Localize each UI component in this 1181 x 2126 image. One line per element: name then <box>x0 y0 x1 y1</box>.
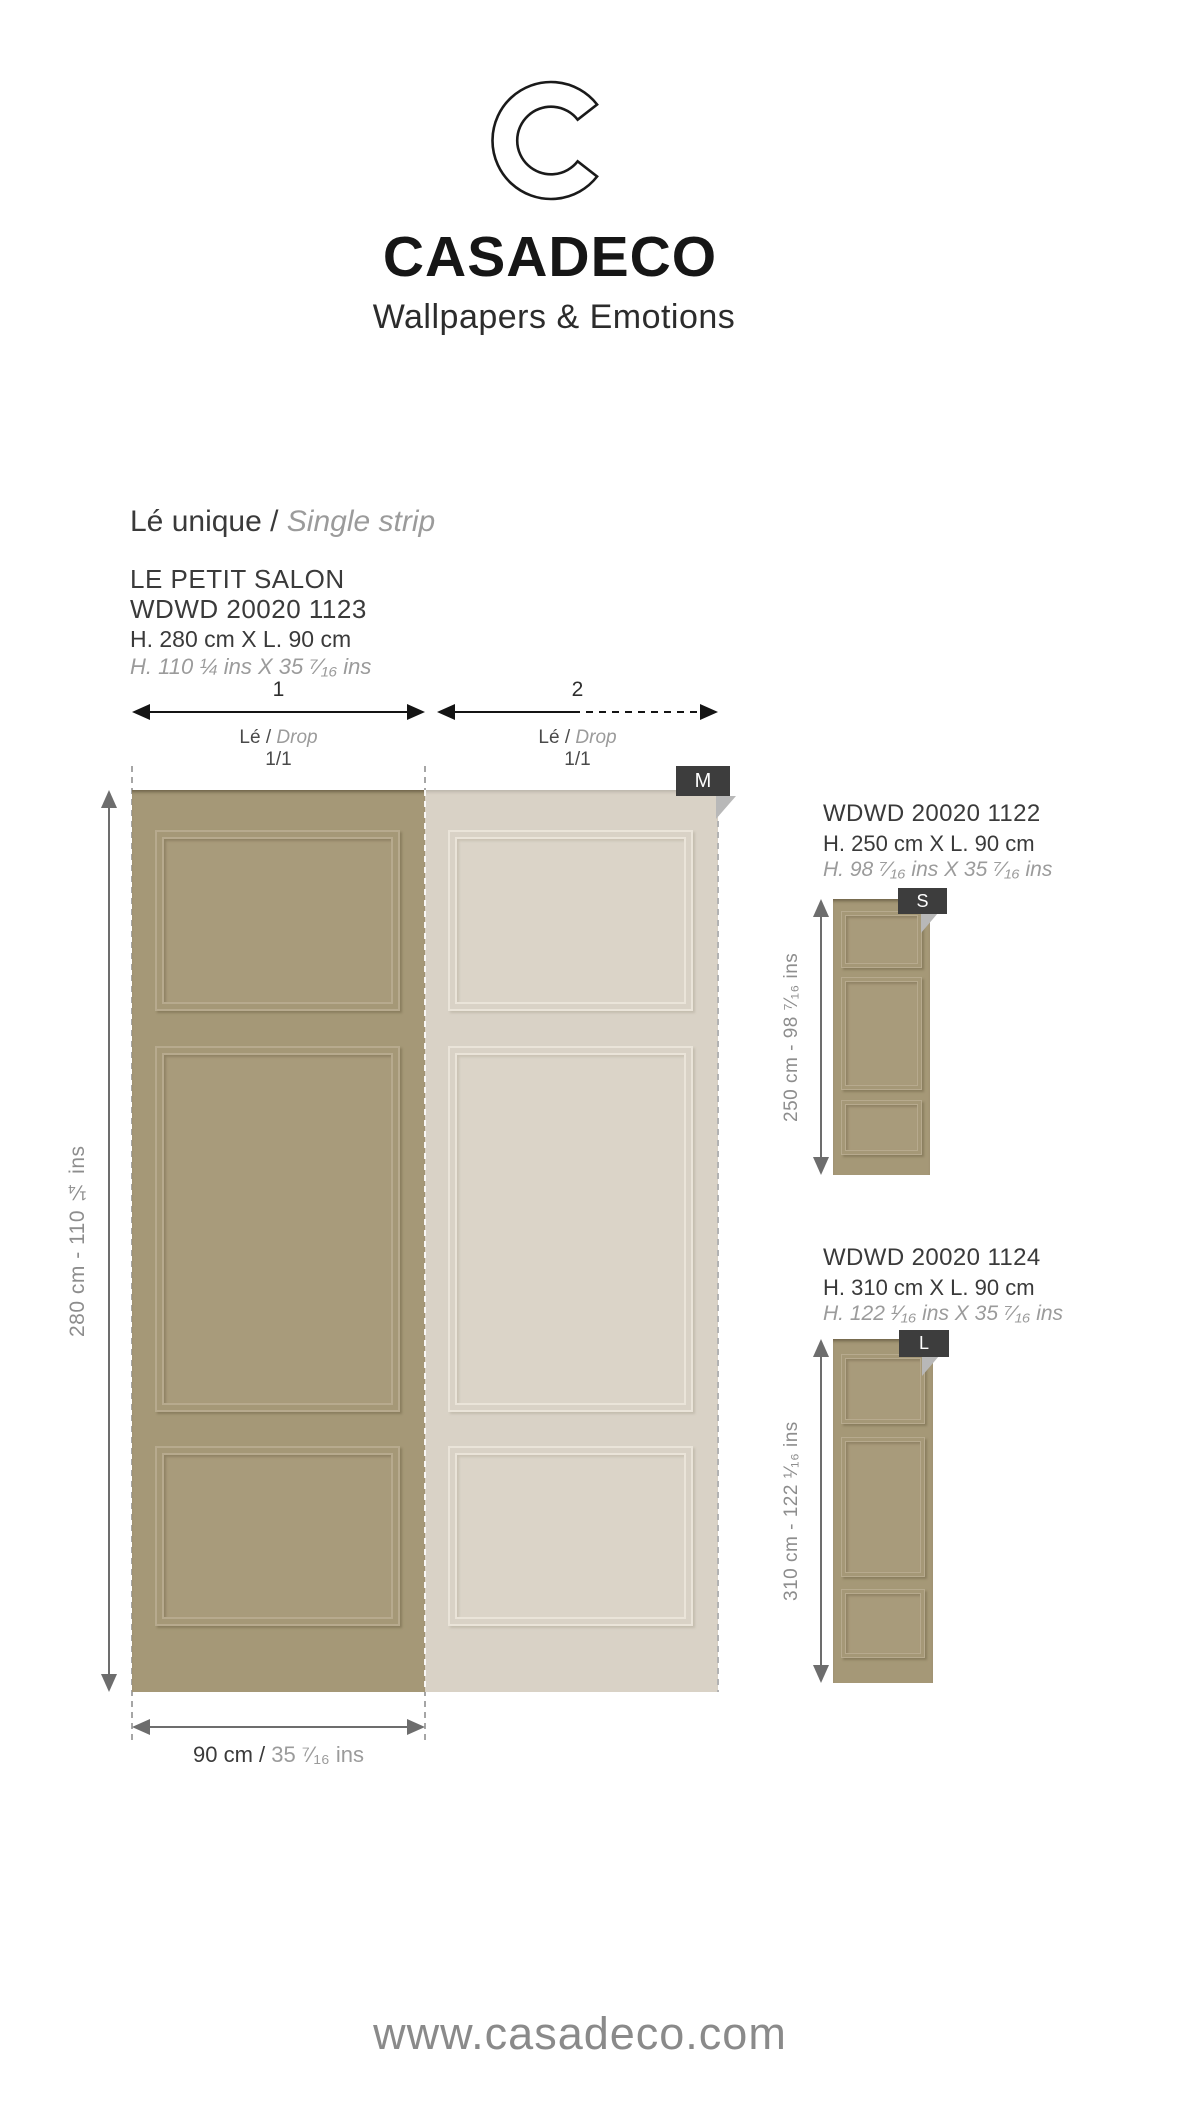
arrow-up-icon <box>813 899 829 917</box>
main-product-ref: WDWD 20020 1123 <box>130 594 367 625</box>
corner-fold <box>716 796 736 819</box>
wainscot-panel <box>448 830 693 1012</box>
main-product-size-cm: H. 280 cm X L. 90 cm <box>130 626 351 653</box>
website-footer: www.casadeco.com <box>0 2008 1160 2060</box>
size-badge-m: M <box>676 766 730 796</box>
brand-tagline: Wallpapers & Emotions <box>0 298 1108 337</box>
arrow-down-icon <box>101 1674 117 1692</box>
wainscot-panel <box>155 1446 400 1626</box>
variant-l-size-ins: H. 122 ¹⁄₁₆ ins X 35 ⁷⁄₁₆ ins <box>823 1302 1063 1326</box>
wainscot-panel <box>841 977 922 1090</box>
arrow-right-icon <box>407 1719 425 1735</box>
height-arrow-s <box>813 899 829 1175</box>
size-badge-l: L <box>899 1330 949 1357</box>
wainscot-panel <box>448 1046 693 1412</box>
wainscot-panel <box>841 1354 925 1424</box>
strip2-number-label: 2 <box>437 678 718 702</box>
wainscot-panel <box>841 1100 922 1156</box>
strip-seam-dashed-line <box>424 790 426 1692</box>
wainscot-panel <box>841 911 922 967</box>
strip1-number-label: 1 <box>132 678 425 702</box>
wallpaper-strip-l <box>833 1339 933 1683</box>
strip2-width-arrow <box>437 704 718 720</box>
strip2-ratio: 1/1 <box>564 749 590 770</box>
wainscot-panel <box>155 830 400 1012</box>
main-product-name: LE PETIT SALON <box>130 564 345 595</box>
arrow-up-icon <box>813 1339 829 1357</box>
variant-s-size-ins: H. 98 ⁷⁄₁₆ ins X 35 ⁷⁄₁₆ ins <box>823 858 1052 882</box>
arrow-down-icon <box>813 1665 829 1683</box>
arrow-up-icon <box>101 790 117 808</box>
arrow-left-icon <box>437 704 455 720</box>
dashed-guide-right <box>717 766 719 1692</box>
wainscot-panel <box>841 1589 925 1658</box>
variant-s-size-cm: H. 250 cm X L. 90 cm <box>823 831 1035 857</box>
size-badge-s: S <box>898 888 947 914</box>
height-label-main: 280 cm - 110 ¼ ins <box>62 790 94 1692</box>
wainscot-panel <box>841 1437 925 1577</box>
main-product-size-ins: H. 110 ¼ ins X 35 ⁷⁄₁₆ ins <box>130 654 371 680</box>
arrow-right-icon <box>700 704 718 720</box>
variant-l-size-cm: H. 310 cm X L. 90 cm <box>823 1275 1035 1301</box>
wallpaper-strip-1 <box>132 790 425 1692</box>
section-title-fr: Lé unique / <box>130 505 287 538</box>
arrow-left-icon <box>132 1719 150 1735</box>
bottom-width-label: 90 cm / 35 ⁷⁄₁₆ ins <box>132 1742 425 1768</box>
brand-name: CASADECO <box>0 224 1100 290</box>
wallpaper-strip-s <box>833 899 930 1175</box>
strip1-drop-label: Lé / Drop 1/1 <box>132 727 425 771</box>
wainscot-panel <box>155 1046 400 1412</box>
variant-l-ref: WDWD 20020 1124 <box>823 1244 1041 1272</box>
strip2-drop-label: Lé / Drop 1/1 <box>437 727 718 771</box>
variant-s-ref: WDWD 20020 1122 <box>823 800 1041 828</box>
arrow-down-icon <box>813 1157 829 1175</box>
height-label-s: 250 cm - 98 ⁷⁄₁₆ ins <box>778 899 806 1175</box>
arrow-left-icon <box>132 704 150 720</box>
bottom-width-arrow <box>132 1719 425 1735</box>
section-title-en: Single strip <box>287 505 435 538</box>
strip1-ratio: 1/1 <box>265 749 291 770</box>
height-label-l: 310 cm - 122 ¹⁄₁₆ ins <box>778 1339 806 1683</box>
strip1-width-arrow <box>132 704 425 720</box>
arrow-right-icon <box>407 704 425 720</box>
casadeco-logo-icon <box>486 68 616 213</box>
height-arrow-main <box>101 790 117 1692</box>
wainscot-panel <box>448 1446 693 1626</box>
height-arrow-l <box>813 1339 829 1683</box>
wallpaper-strip-2 <box>425 790 718 1692</box>
spec-sheet: CASADECO Wallpapers & Emotions Lé unique… <box>0 0 1181 2126</box>
section-title: Lé unique / Single strip <box>130 505 435 539</box>
